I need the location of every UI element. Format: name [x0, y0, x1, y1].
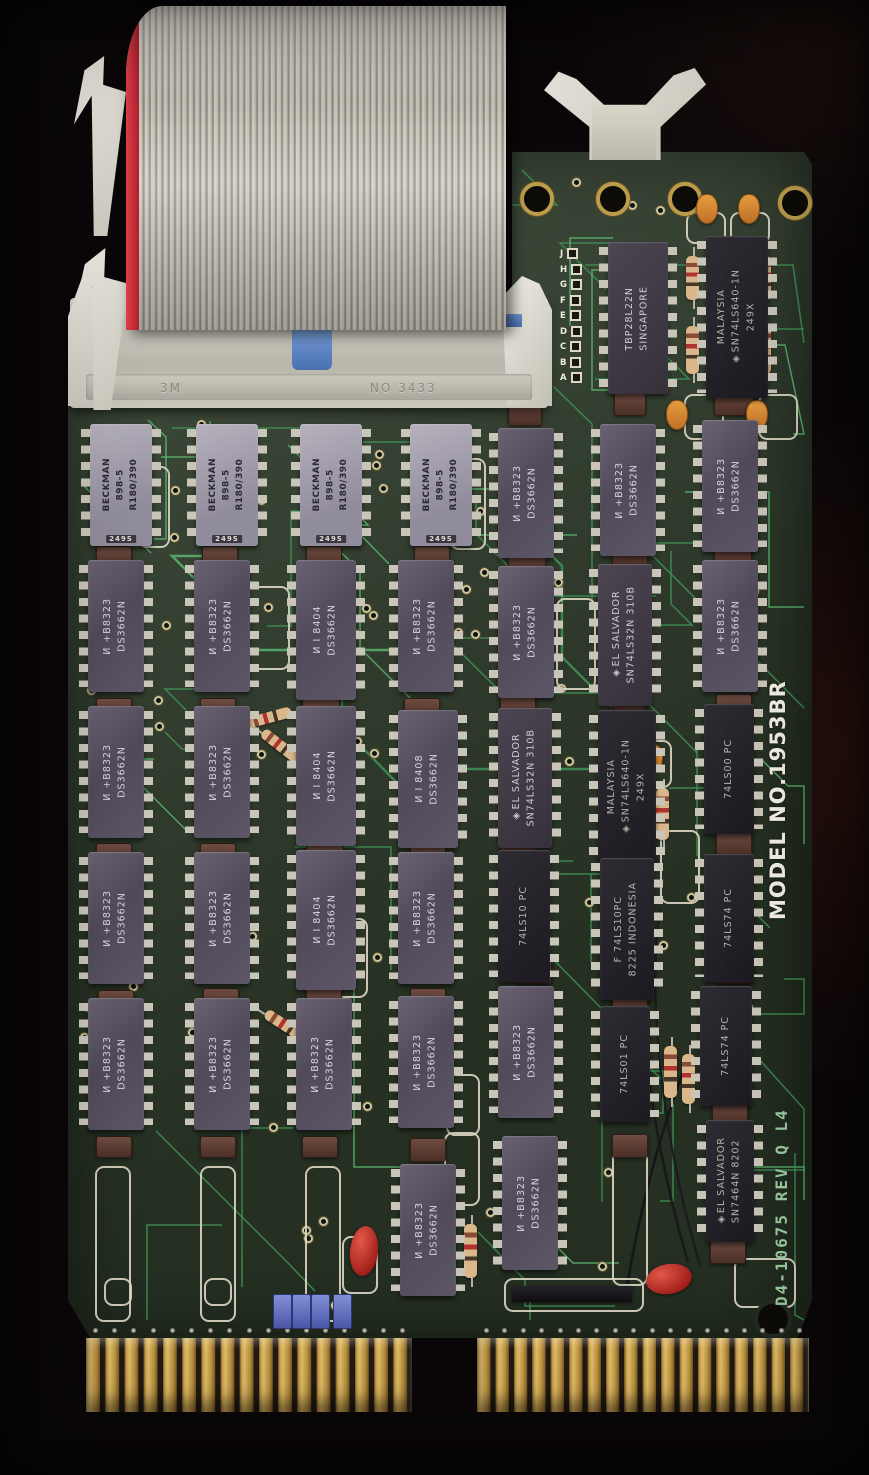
dip-chip: И +B8323 DS3662N	[88, 852, 144, 984]
capacitor	[410, 1138, 446, 1162]
resistor	[664, 1046, 677, 1098]
dip-chip: И +B8323 DS3662N	[194, 852, 250, 984]
finger-pad-hole	[151, 1328, 156, 1333]
chip-marking: 74LS00 PC	[722, 739, 737, 799]
dip-chip: И +B8323 DS3662N	[194, 706, 250, 838]
j2-pin-letter: A	[560, 373, 567, 383]
via-hole	[162, 621, 171, 630]
j2-pin-letter: H	[560, 265, 567, 275]
j2-pin: J	[560, 248, 578, 259]
via-hole	[375, 450, 384, 459]
via-hole	[369, 611, 378, 620]
dip-chip: И +B8323 DS3662N	[400, 1164, 456, 1296]
chip-marking: И +B8323 DS3662N	[515, 1175, 544, 1232]
j2-pin: A	[560, 372, 582, 383]
jumper-block	[273, 1294, 292, 1329]
finger-pad-hole	[558, 1328, 563, 1333]
finger-pad-hole	[502, 1328, 507, 1333]
chip-marking: MALAYSIA ◈SN74LS640-1N 249X	[605, 739, 649, 834]
chip-tag: 249S	[426, 535, 456, 543]
finger-pad-hole	[650, 1328, 655, 1333]
dip-chip: 74LS01 PC	[600, 1006, 650, 1122]
chip-tag: 249S	[212, 535, 242, 543]
j2-pin: D	[560, 326, 582, 337]
chip-marking: MALAYSIA ◈SN74LS640-1N 249X	[715, 269, 759, 364]
via-hole	[170, 533, 179, 542]
dip-chip: И +B8323 DS3662N	[600, 424, 656, 556]
via-hole	[565, 757, 574, 766]
chip-marking: И +B8323 DS3662N	[207, 890, 236, 947]
capacitor	[696, 194, 718, 224]
finger-pad-hole	[797, 1328, 802, 1333]
finger-pad-hole	[170, 1328, 175, 1333]
via-hole	[363, 1102, 372, 1111]
via-hole	[379, 484, 388, 493]
photo-background: BECKMAN 898-5 R180/390 249S BECKMAN 898-…	[0, 0, 869, 1475]
dip-chip: ◈EL SALVADOR SN74LS32N 310B	[598, 564, 652, 706]
finger-pad-hole	[208, 1328, 213, 1333]
via-hole	[572, 178, 581, 187]
j2-pin: G	[560, 279, 582, 290]
dip-chip: И +B8323 DS3662N	[88, 998, 144, 1130]
chip-marking: И I 8404 DS3662N	[311, 750, 340, 802]
finger-pad-hole	[131, 1328, 136, 1333]
dip-chip: И +B8323 DS3662N	[296, 998, 352, 1130]
chip-marking: И +B8323 DS3662N	[511, 604, 540, 661]
j2-pin-pad	[570, 310, 581, 321]
dip-chip: И I 8404 DS3662N	[296, 850, 356, 990]
via-hole	[370, 749, 379, 758]
dip-chip: И +B8323 DS3662N	[88, 706, 144, 838]
dip-chip: И +B8323 DS3662N	[194, 998, 250, 1130]
finger-pad-hole	[381, 1328, 386, 1333]
connector-lip	[86, 374, 532, 400]
chip-marking: И +B8323 DS3662N	[613, 462, 642, 519]
dip-chip: 74LS74 PC	[704, 854, 754, 982]
chip-marking: И +B8323 DS3662N	[101, 1036, 130, 1093]
dip-chip: 74LS10 PC	[498, 850, 550, 982]
finger-pad-hole	[631, 1328, 636, 1333]
chip-marking: BECKMAN 898-5 R180/390	[101, 458, 142, 512]
via-hole	[269, 1123, 278, 1132]
via-hole	[471, 630, 480, 639]
capacitor	[614, 392, 646, 416]
dip-chip: И +B8323 DS3662N	[194, 560, 250, 692]
dip-chip: ◈EL SALVADOR SN74LS32N 310B	[498, 708, 552, 848]
dip-chip: TBP28L22N SINGAPORE	[608, 242, 668, 394]
ribbon-cable	[126, 6, 506, 330]
dip-chip: И +B8323 DS3662N	[702, 420, 758, 552]
chip-marking: ◈EL SALVADOR SN74LS32N 310B	[610, 586, 639, 683]
dip-chip: И +B8323 DS3662N	[498, 986, 554, 1118]
via-hole	[656, 206, 665, 215]
chip-marking: И +B8323 DS3662N	[411, 1034, 440, 1091]
j2-pin-letter: E	[560, 311, 566, 321]
j2-pin-letter: J	[560, 249, 563, 259]
dip-chip: И +B8323 DS3662N	[398, 852, 454, 984]
finger-pad-hole	[112, 1328, 117, 1333]
j2-pin-pad	[571, 326, 582, 337]
dip-chip: И +B8323 DS3662N	[498, 566, 554, 698]
capacitor	[710, 1240, 746, 1264]
finger-pad-hole	[687, 1328, 692, 1333]
dip-chip: BECKMAN 898-5 R180/390 249S	[196, 424, 258, 546]
finger-pad-hole	[266, 1328, 271, 1333]
jumper-block	[333, 1294, 352, 1329]
chip-marking: 74LS74 PC	[722, 888, 737, 948]
j2-pin-letter: B	[560, 358, 566, 368]
dip-chip: И +B8323 DS3662N	[702, 560, 758, 692]
dip-chip: И +B8323 DS3662N	[398, 996, 454, 1128]
finger-pad-hole	[247, 1328, 252, 1333]
connector-latch-upper	[74, 56, 126, 236]
mounting-hole	[520, 182, 554, 216]
via-hole	[373, 953, 382, 962]
capacitor	[666, 400, 688, 430]
chip-marking: ◈EL SALVADOR SN74LS32N 310B	[510, 729, 539, 826]
j2-pin-pad	[571, 372, 582, 383]
finger-pad-hole	[705, 1328, 710, 1333]
finger-pad-hole	[724, 1328, 729, 1333]
dip-chip: 74LS00 PC	[704, 704, 754, 834]
finger-pad-hole	[539, 1328, 544, 1333]
dip-chip: BECKMAN 898-5 R180/390 249S	[300, 424, 362, 546]
chip-marking: 74LS74 PC	[719, 1016, 734, 1076]
dip-chip: F 74LS10PC 8225 INDONESIA	[600, 858, 654, 1000]
via-hole	[171, 486, 180, 495]
chip-marking: BECKMAN 898-5 R180/390	[421, 458, 462, 512]
finger-pad-hole	[362, 1328, 367, 1333]
j2-pin-pad	[571, 279, 582, 290]
dip-chip: И +B8323 DS3662N	[88, 560, 144, 692]
jumper-block	[311, 1294, 330, 1329]
finger-pad-hole	[594, 1328, 599, 1333]
via-hole	[154, 696, 163, 705]
dip-chip: 74LS74 PC	[700, 986, 752, 1106]
chip-marking: И +B8323 DS3662N	[715, 458, 744, 515]
dip-chip: И I 8404 DS3662N	[296, 706, 356, 846]
chip-marking: И I 8404 DS3662N	[311, 604, 340, 656]
j2-pin-letter: C	[560, 342, 566, 352]
connector-blue-tab	[292, 326, 332, 370]
j2-pin-pad	[570, 295, 581, 306]
cable-clamp-bracket	[544, 68, 706, 160]
chip-marking: И +B8323 DS3662N	[511, 465, 540, 522]
capacitor	[716, 832, 752, 856]
dip-chip: MALAYSIA ◈SN74LS640-1N 249X	[706, 236, 768, 398]
chip-marking: И +B8323 DS3662N	[511, 1024, 540, 1081]
j2-pin-pad	[570, 341, 581, 352]
ribbon-cable-red-stripe	[126, 6, 139, 330]
j2-pin: B	[560, 357, 581, 368]
chip-marking: И +B8323 DS3662N	[207, 744, 236, 801]
model-number-text: MODEL NO.1953BR	[766, 628, 790, 920]
dip-chip: И +B8323 DS3662N	[498, 428, 554, 558]
j2-pin: F	[560, 295, 581, 306]
mounting-hole	[596, 182, 630, 216]
j2-pin-letter: F	[560, 296, 566, 306]
j2-pin-pad	[567, 248, 578, 259]
j2-pin-letter: G	[560, 280, 567, 290]
finger-pad-hole	[576, 1328, 581, 1333]
chip-marking: И I 8404 DS3662N	[311, 894, 340, 946]
via-hole	[480, 568, 489, 577]
mounting-hole	[778, 186, 812, 220]
dip-chip: BECKMAN 898-5 R180/390 249S	[410, 424, 472, 546]
finger-pad-hole	[521, 1328, 526, 1333]
j2-pin: C	[560, 341, 581, 352]
capacitor	[200, 1136, 236, 1158]
chip-marking: 74LS01 PC	[618, 1034, 633, 1094]
j2-pin-letter: D	[560, 327, 567, 337]
chip-marking: И +B8323 DS3662N	[715, 598, 744, 655]
capacitor	[738, 194, 760, 224]
footprint-outline	[104, 1278, 132, 1306]
dip-chip: MALAYSIA ◈SN74LS640-1N 249X	[598, 710, 656, 864]
dip-chip: BECKMAN 898-5 R180/390 249S	[90, 424, 152, 546]
j2-pin: E	[560, 310, 581, 321]
finger-pad-hole	[668, 1328, 673, 1333]
connector-brand-marking: 3M	[160, 381, 182, 395]
finger-pad-hole	[484, 1328, 489, 1333]
assembly-revision-text: D4-10675 REV Q L4	[772, 988, 791, 1306]
chip-marking: И +B8323 DS3662N	[411, 598, 440, 655]
chip-marking: F 74LS10PC 8225 INDONESIA	[612, 882, 641, 976]
chip-tag: 249S	[316, 535, 346, 543]
capacitor	[96, 1136, 132, 1158]
footprint-outline	[660, 830, 700, 904]
chip-marking: И I 8408 DS3662N	[413, 753, 442, 805]
chip-marking: И +B8323 DS3662N	[309, 1036, 338, 1093]
ribbon-cable-sheen	[126, 6, 506, 330]
chip-marking: И +B8323 DS3662N	[101, 598, 130, 655]
dip-chip: И I 8404 DS3662N	[296, 560, 356, 700]
chip-marking: И +B8323 DS3662N	[101, 744, 130, 801]
chip-marking: ◈EL SALVADOR SN7464N 8202	[715, 1137, 744, 1225]
finger-pad-hole	[760, 1328, 765, 1333]
j2-pin-pad	[570, 357, 581, 368]
resistor	[464, 1224, 477, 1278]
finger-pad-hole	[189, 1328, 194, 1333]
chip-marking: И +B8323 DS3662N	[411, 890, 440, 947]
via-hole	[155, 722, 164, 731]
capacitor	[612, 1134, 648, 1158]
chip-marking: И +B8323 DS3662N	[207, 598, 236, 655]
chip-marking: И +B8323 DS3662N	[413, 1202, 442, 1259]
via-hole	[598, 1262, 607, 1271]
chip-marking: 74LS10 PC	[517, 886, 532, 946]
capacitor	[512, 1286, 632, 1302]
finger-pad-hole	[93, 1328, 98, 1333]
dip-chip: И I 8408 DS3662N	[398, 710, 458, 848]
chip-marking: И +B8323 DS3662N	[207, 1036, 236, 1093]
edge-connector-fingers-right	[477, 1338, 809, 1412]
j2-pin: H	[560, 264, 582, 275]
jumper-block	[292, 1294, 311, 1329]
dip-chip: И +B8323 DS3662N	[398, 560, 454, 692]
chip-marking: И +B8323 DS3662N	[101, 890, 130, 947]
via-hole	[372, 461, 381, 470]
finger-pad-hole	[613, 1328, 618, 1333]
j2-pin-pad	[571, 264, 582, 275]
dip-chip: И +B8323 DS3662N	[502, 1136, 558, 1270]
dip-chip: ◈EL SALVADOR SN7464N 8202	[706, 1120, 754, 1242]
finger-pad-hole	[742, 1328, 747, 1333]
footprint-outline	[204, 1278, 232, 1306]
connector-part-marking: NO 3433	[370, 381, 437, 395]
edge-connector-fingers-left	[86, 1338, 412, 1412]
chip-marking: TBP28L22N SINGAPORE	[623, 286, 652, 351]
via-hole	[462, 585, 471, 594]
finger-pad-hole	[400, 1328, 405, 1333]
chip-marking: BECKMAN 898-5 R180/390	[207, 458, 248, 512]
footprint-outline	[612, 1150, 648, 1286]
chip-marking: BECKMAN 898-5 R180/390	[311, 458, 352, 512]
capacitor	[302, 1136, 338, 1158]
finger-pad-hole	[227, 1328, 232, 1333]
finger-pad-hole	[779, 1328, 784, 1333]
chip-tag: 249S	[106, 535, 136, 543]
